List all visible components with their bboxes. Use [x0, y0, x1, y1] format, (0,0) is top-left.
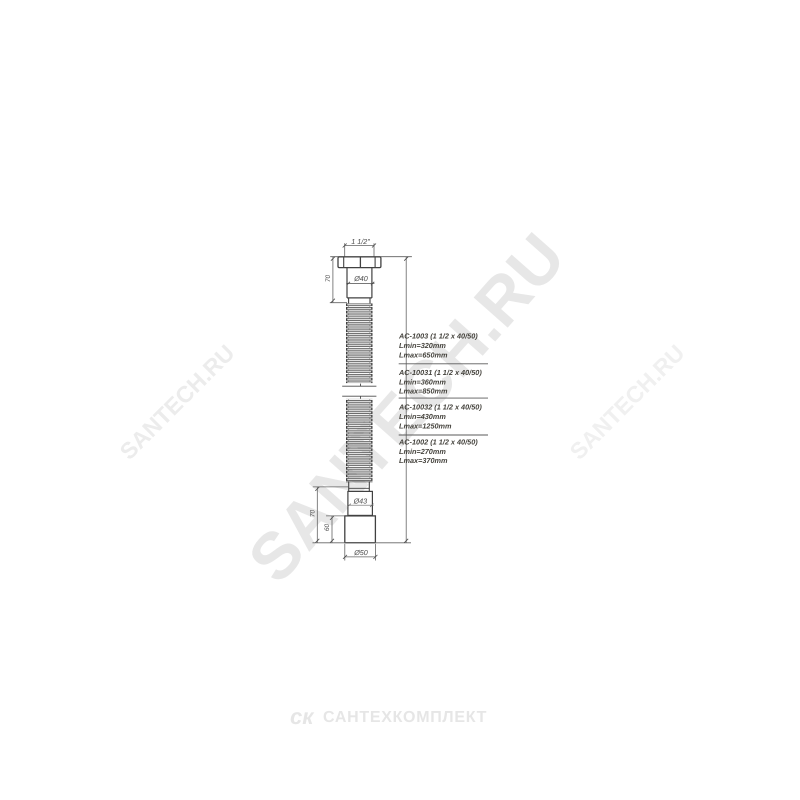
- svg-text:Lmin=360mm: Lmin=360mm: [399, 377, 446, 386]
- svg-text:SANTECH.RU: SANTECH.RU: [114, 339, 239, 464]
- svg-text:Lmin=270mm: Lmin=270mm: [399, 447, 446, 456]
- svg-text:60: 60: [324, 524, 331, 532]
- svg-text:Lmax=370mm: Lmax=370mm: [399, 456, 448, 465]
- svg-text:Lmax=1250mm: Lmax=1250mm: [399, 421, 452, 430]
- svg-text:Lmax=650mm: Lmax=650mm: [399, 351, 448, 360]
- svg-text:ск: ск: [290, 704, 315, 729]
- svg-text:САНТЕХКОМПЛЕКТ: САНТЕХКОМПЛЕКТ: [323, 709, 487, 726]
- svg-text:Lmin=320mm: Lmin=320mm: [399, 341, 446, 350]
- svg-text:Lmin=430mm: Lmin=430mm: [399, 412, 446, 421]
- svg-text:Ø40: Ø40: [353, 274, 368, 283]
- svg-text:SANTECH.RU: SANTECH.RU: [564, 339, 689, 464]
- svg-text:AC-10031 (1 1/2 x 40/50): AC-10031 (1 1/2 x 40/50): [398, 368, 482, 377]
- svg-text:1 1/2": 1 1/2": [351, 237, 370, 246]
- svg-text:Ø50: Ø50: [353, 548, 368, 557]
- svg-text:AC-1002 (1 1/2 x 40/50): AC-1002 (1 1/2 x 40/50): [398, 438, 478, 447]
- svg-text:Ø43: Ø43: [353, 496, 368, 505]
- svg-text:70: 70: [325, 275, 332, 283]
- svg-text:AC-1003 (1 1/2 x 40/50): AC-1003 (1 1/2 x 40/50): [398, 332, 478, 341]
- svg-text:Lmax=850mm: Lmax=850mm: [399, 386, 448, 395]
- svg-text:AC-10032 (1 1/2 x 40/50): AC-10032 (1 1/2 x 40/50): [398, 403, 482, 412]
- svg-text:70: 70: [309, 510, 316, 518]
